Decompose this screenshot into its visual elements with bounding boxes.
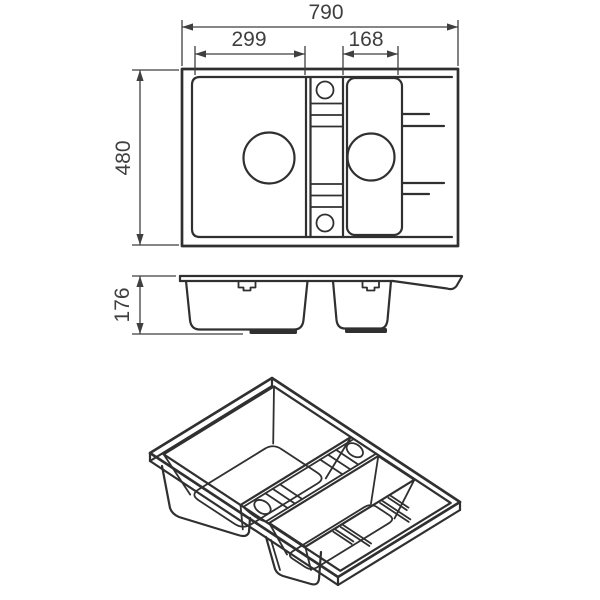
tap-hole-bottom [317, 215, 334, 232]
dimension-label-left-bowl-width: 299 [231, 28, 266, 51]
left-bowl-overflow-notch [239, 281, 256, 291]
right-bowl-overflow-notch [363, 281, 380, 291]
side-view [180, 276, 462, 334]
dimension-bowl-height: 176 [111, 276, 243, 334]
left-bowl-profile [186, 281, 308, 330]
drainboard-grooves [402, 114, 444, 194]
iso-divider-strip [243, 439, 376, 522]
arrowhead-left [182, 23, 193, 30]
arrowhead-left [343, 50, 354, 57]
arrowhead-right [387, 50, 398, 57]
sink-outer-edge [182, 69, 458, 246]
arrowhead-top [136, 276, 143, 287]
divider-strip [311, 77, 344, 237]
arrowhead-left [195, 50, 206, 57]
divider-ribs-top [311, 104, 344, 127]
left-bowl-drain-boss [250, 329, 298, 334]
left-bowl-drain [244, 133, 295, 184]
deck-recess-outline [192, 77, 452, 237]
sink-technical-drawing-page: 790 299 168 480 [0, 0, 600, 600]
dimension-label-overall-width: 790 [308, 1, 343, 24]
iso-strip-right-line [266, 454, 376, 522]
arrowhead-right [447, 23, 458, 30]
right-bowl-drain [348, 134, 395, 181]
arrowhead-bottom [136, 323, 143, 334]
iso-divider-ribs-near [265, 484, 302, 508]
isometric-view [150, 378, 460, 585]
drainboard-underside-lip [393, 277, 462, 290]
divider-ribs-bottom [311, 184, 344, 207]
arrowhead-top [136, 70, 143, 81]
dimension-overall-width: 790 [182, 1, 458, 66]
dimension-label-right-bowl-width: 168 [348, 28, 383, 51]
extension-lines [132, 70, 179, 245]
right-bowl-drain-boss [345, 328, 387, 333]
dimension-overall-depth: 480 [112, 70, 179, 245]
dimension-label-bowl-height: 176 [111, 287, 134, 322]
arrowhead-right [294, 50, 305, 57]
tap-hole-top [317, 82, 334, 99]
arrowhead-bottom [136, 234, 143, 245]
dimension-label-overall-depth: 480 [112, 140, 135, 175]
top-view [182, 69, 458, 246]
iso-groove [333, 529, 353, 544]
sink-technical-drawing: 790 299 168 480 [0, 0, 600, 600]
